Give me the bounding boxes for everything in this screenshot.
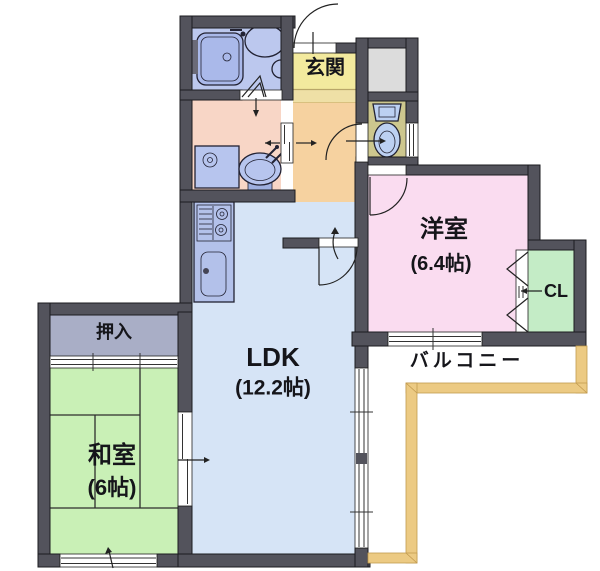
washitsu-window [60,554,157,567]
label-ldk: LDK [246,344,299,370]
washing-machine-icon [195,146,239,188]
ldk-doorway [319,238,358,247]
label-ldk-size: (12.2帖) [235,378,311,399]
kitchen-counter [194,202,234,302]
utility-box [368,48,406,92]
label-western-room: 洋室 [420,218,468,242]
genkan-step [293,90,356,103]
label-western-size: (6.4帖) [410,254,471,274]
label-cl: CL [544,282,568,300]
label-washitsu-size: (6帖) [88,477,137,499]
washitsu-fusuma [178,412,192,506]
floorplan-canvas: 玄関 洋室 (6.4帖) CL LDK (12.2帖) 和室 (6帖) 押入 バ… [0,0,600,571]
entrance-doorway [293,43,336,53]
toilet-window [406,123,418,157]
toilet-doorway [356,123,368,162]
entrance-door-arc [294,4,338,48]
label-washitsu: 和室 [88,444,136,468]
label-genkan: 玄関 [305,58,345,78]
toilet-icon [373,104,401,157]
bathtub-icon [192,30,246,85]
label-oshiire: 押入 [96,323,132,341]
washroom-sliding-door [281,123,293,163]
balcony-railing [368,346,587,563]
label-balcony: バルコニー [410,352,525,371]
western-doorway [368,165,406,175]
oshiire-fusuma [50,353,178,371]
